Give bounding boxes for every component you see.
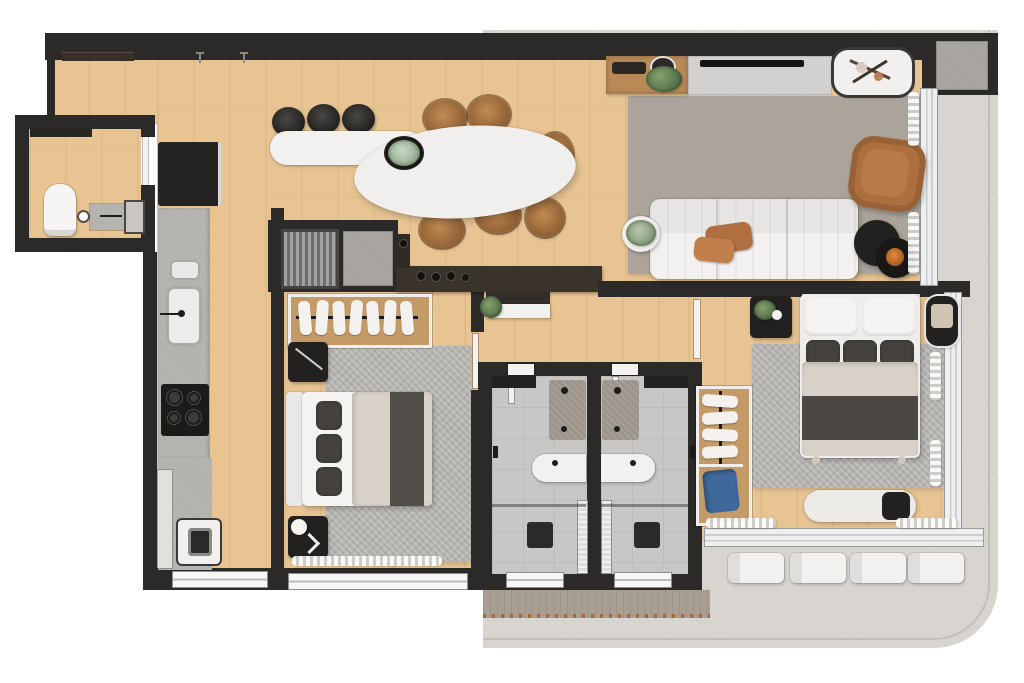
bath1-mixer bbox=[493, 446, 498, 458]
bottle-4 bbox=[447, 272, 455, 280]
deck-trim bbox=[483, 614, 710, 618]
bath2-shower-drain bbox=[614, 426, 620, 432]
side-table-plant bbox=[626, 220, 656, 246]
bath2-glass-partition bbox=[601, 504, 688, 507]
living-balcony-glass-doors bbox=[920, 88, 938, 286]
bar-stool-2 bbox=[307, 104, 340, 134]
burner-4 bbox=[186, 410, 201, 425]
burner-1 bbox=[167, 390, 182, 405]
master-nightstand-tray bbox=[931, 304, 953, 328]
bedroom1-pillow-1 bbox=[316, 401, 342, 430]
orange-bowl bbox=[886, 248, 904, 266]
kitchen-faucet-base bbox=[178, 310, 185, 317]
master-pillow-1 bbox=[804, 298, 858, 336]
wardrobe-blue-item bbox=[702, 468, 740, 513]
tall-cabinet bbox=[158, 470, 172, 568]
washer-door bbox=[188, 528, 212, 556]
burner-2 bbox=[188, 392, 200, 404]
tv-screen bbox=[700, 60, 804, 67]
bath2-mixer bbox=[690, 446, 695, 458]
kitchen-main-sink bbox=[166, 286, 202, 346]
powder-wall-bottom bbox=[15, 238, 155, 252]
powder-wall-left bbox=[15, 115, 29, 252]
living-curtain-2 bbox=[908, 212, 919, 274]
bath1-drain-mat bbox=[527, 522, 553, 548]
wardrobe-garment bbox=[702, 394, 739, 408]
bedroom1-curtain bbox=[292, 556, 442, 566]
ac-condenser-mat bbox=[936, 41, 988, 90]
bath2-window bbox=[614, 572, 672, 588]
powder-shelf bbox=[30, 129, 92, 137]
bar-shelf bbox=[396, 266, 602, 292]
hanging-garment bbox=[383, 300, 397, 336]
bath1-vanity bbox=[532, 454, 586, 482]
bottle-3 bbox=[432, 273, 440, 281]
bottle-1 bbox=[400, 240, 407, 247]
kitchen-small-sink bbox=[170, 260, 200, 280]
bath-frosted-panel-2 bbox=[601, 500, 612, 574]
master-curtain-east-1 bbox=[930, 352, 941, 400]
bath1-faucet bbox=[552, 460, 558, 466]
powder-faucet bbox=[100, 215, 122, 217]
bedroom1-pillow-3 bbox=[316, 467, 342, 496]
bath1-shower-drain bbox=[561, 426, 567, 432]
floor-plan bbox=[0, 0, 1024, 683]
sphere-lamp bbox=[291, 519, 307, 535]
bottle-5 bbox=[462, 274, 469, 281]
master-sliding-door bbox=[704, 528, 984, 547]
bench-cushion bbox=[882, 492, 910, 520]
master-pillow-2 bbox=[862, 298, 916, 336]
bath1-shelf bbox=[492, 376, 536, 388]
burner-3 bbox=[168, 412, 180, 424]
wardrobe-shelf-line bbox=[699, 464, 743, 467]
tv-console-decor bbox=[612, 62, 646, 74]
master-curtain-east-2 bbox=[930, 440, 941, 486]
bath-center-divider bbox=[587, 362, 601, 590]
entry-shelf bbox=[62, 52, 134, 61]
hanging-garment bbox=[332, 301, 346, 336]
bedroom1-window bbox=[288, 573, 468, 590]
bath2-vanity bbox=[601, 454, 655, 482]
bath2-door-sill bbox=[612, 364, 638, 375]
bedroom1-nightstand-north bbox=[288, 342, 328, 382]
bath1-door-sill bbox=[508, 364, 534, 375]
bath1-window bbox=[506, 572, 564, 588]
bottle-2 bbox=[417, 272, 425, 280]
sofa bbox=[650, 199, 858, 279]
powder-niche bbox=[124, 200, 145, 234]
wardrobe-garment bbox=[702, 428, 739, 442]
lounger-3 bbox=[850, 553, 906, 583]
duvet-tassel-1 bbox=[812, 456, 820, 464]
powder-door-leaf bbox=[143, 137, 148, 185]
master-curtain-south-1 bbox=[706, 518, 776, 528]
hanging-garment bbox=[366, 301, 380, 336]
master-dark-throw bbox=[802, 396, 918, 440]
bath-wall-left bbox=[478, 362, 492, 590]
wardrobe-garment bbox=[702, 445, 739, 459]
bath1-shower-head bbox=[561, 387, 568, 394]
left-stub-wall bbox=[47, 56, 55, 118]
lounger-2 bbox=[790, 553, 846, 583]
tv-plant bbox=[646, 66, 682, 92]
centerpiece-plant bbox=[388, 140, 420, 166]
bath2-shower-head bbox=[614, 387, 621, 394]
hanging-garment bbox=[315, 300, 329, 336]
toilet bbox=[44, 184, 76, 236]
living-curtain-1 bbox=[908, 92, 919, 146]
sofa-tan-pillow-2 bbox=[693, 236, 735, 264]
master-curtain-south-2 bbox=[896, 518, 958, 528]
ceiling-tick-2 bbox=[240, 52, 248, 63]
lounger-1 bbox=[728, 553, 784, 583]
bath1-glass-partition bbox=[492, 504, 586, 507]
bath-frosted-panel-1 bbox=[577, 500, 588, 574]
master-nightstand-lamp bbox=[772, 310, 782, 320]
corridor-plant bbox=[480, 296, 502, 318]
bath2-shelf bbox=[644, 376, 688, 388]
bath2-faucet bbox=[630, 460, 636, 466]
kitchen-left-wall bbox=[143, 252, 157, 582]
armchair-cushion bbox=[859, 147, 911, 199]
lounger-4 bbox=[908, 553, 964, 583]
wardrobe-garment bbox=[702, 411, 739, 425]
powder-wall-top bbox=[15, 115, 155, 129]
toilet-paper-holder bbox=[79, 212, 88, 221]
decor-plate-2 bbox=[874, 72, 883, 81]
bar-stool-3 bbox=[342, 104, 375, 134]
kitchen-window bbox=[172, 571, 268, 588]
ceiling-tick-1 bbox=[196, 52, 204, 63]
laundry-ac-louver-unit bbox=[281, 229, 339, 289]
master-door-leaf bbox=[694, 300, 700, 358]
bedroom1-runner bbox=[390, 392, 424, 506]
utility-floor-mat bbox=[343, 231, 393, 286]
bath2-drain-mat bbox=[634, 522, 660, 548]
duvet-tassel-2 bbox=[898, 456, 906, 464]
bedroom1-pillow-2 bbox=[316, 434, 342, 463]
refrigerator bbox=[158, 142, 221, 206]
powder-wall-right-a bbox=[141, 115, 155, 137]
decor-plate-1 bbox=[856, 62, 867, 73]
